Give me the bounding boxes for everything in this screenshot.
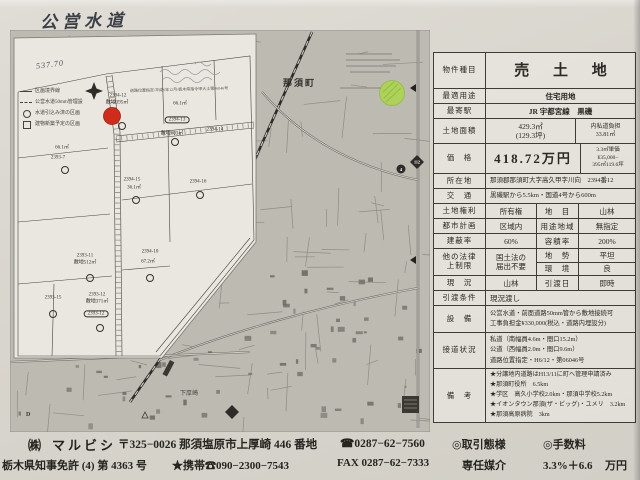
row-label: 物件種目	[434, 53, 486, 88]
row-access: 交 通 黒磯駅から5.5km・国道4号から600m	[434, 189, 635, 204]
row-label: 所在地	[434, 174, 486, 188]
row-city-plan: 都市計画 区域内 用途地域 無指定	[434, 219, 635, 234]
row-label: 地 勢	[537, 249, 579, 262]
property-type-value: 売 土 地	[486, 53, 635, 88]
row-label: 都市計画	[434, 219, 486, 233]
district-label: 下厚崎	[180, 389, 198, 397]
row-label: 設 備	[434, 306, 486, 332]
access-value: 黒磯駅から5.5km・国道4号から600m	[486, 189, 635, 203]
private-road-label: 内私道負担	[590, 123, 620, 131]
city-plan-value: 区域内	[486, 219, 537, 233]
fax-number: FAX 0287−62−7333	[337, 457, 429, 469]
station-value: JR 宇都宮線 黒磯	[486, 104, 635, 118]
legend-label: 水道引込み済の区画	[35, 109, 80, 116]
row-label: 価 格	[434, 144, 486, 173]
row-label: 地 目	[537, 204, 579, 218]
row-property-type: 物件種目 売 土 地	[434, 53, 635, 89]
deal-type-value: 専任媒介	[462, 457, 506, 473]
row-label: 環 境	[537, 263, 579, 276]
genkyo-value: 山林	[486, 276, 537, 290]
legend-line-icon	[20, 88, 32, 94]
map-legend: 区画境界線 公営水道50mm管埋設 水道引込み済の区画 建物新築予定の区画	[20, 85, 115, 129]
row-road-frontage: 接道状況 私道（南幅員4.6m・間口15.2m） 公道（西幅員2.0m・間口9.…	[434, 333, 635, 369]
grid-letter: D	[26, 412, 31, 418]
row-legal: 他の法律 上制限 国土法の 届出不要 地 勢 平坦 環 境 良	[434, 249, 635, 276]
legend-square-icon	[20, 121, 32, 127]
row-label: 容積率	[537, 234, 579, 248]
legend-label: 建物新築予定の区画	[35, 120, 80, 127]
private-road-value: 33.81㎡	[596, 131, 616, 139]
legend-pipe-icon	[20, 99, 32, 105]
fee-label: ◎手数料	[543, 436, 586, 452]
row-label: 交 通	[434, 189, 486, 203]
row-current-state: 現 況 山林 引渡日 即時	[434, 276, 635, 291]
rights-value: 所有権	[486, 204, 537, 218]
kenpei-value: 60%	[486, 234, 537, 248]
deal-type-label: ◎取引態様	[452, 436, 506, 452]
unit-price-line: 395㎡119.6坪	[592, 162, 623, 170]
row-label: 最寄駅	[434, 104, 486, 118]
yoseki-value: 200%	[579, 234, 635, 248]
law-value: 国土法の	[496, 253, 526, 262]
svg-text:112: 112	[414, 160, 420, 165]
setsudo-line: 公道（西幅員2.0m・間口9.6m）	[490, 345, 579, 355]
setsubi-line: 工事負担金¥330,000(税込・道路内埋設分)	[490, 319, 606, 329]
route-4-badge: 4	[397, 165, 406, 174]
row-label: 引渡日	[537, 276, 579, 290]
row-label: 備 考	[434, 369, 486, 423]
company-name: マルビシ	[52, 435, 116, 454]
youto-value: 無指定	[579, 219, 635, 233]
hikiwatashi-value: 即時	[579, 276, 635, 290]
biko-line: ★学区 高久小学校2.0km・那須中学校5.2km	[490, 391, 612, 401]
row-label: 土地権利	[434, 204, 486, 218]
row-usage: 最適用途 住宅用地	[434, 89, 635, 104]
joken-value: 現況渡し	[486, 291, 635, 305]
row-utilities: 設 備 公営水道・前面道路50mm管から敷地接続可 工事負担金¥330,000(…	[434, 306, 635, 333]
footer: ㈱ マルビシ 〒325−0026 那須塩原市上厚崎 446 番地 ☎0287−6…	[0, 430, 640, 480]
property-table: 物件種目 売 土 地 最適用途 住宅用地 最寄駅 JR 宇都宮線 黒磯 土地面積…	[433, 52, 636, 423]
land-area-value: 429.3㎡	[518, 122, 542, 131]
row-location: 所在地 那須郡那須町大字高久甲字川向 2394番12	[434, 174, 635, 189]
tel-number: ☎0287−62−7560	[340, 436, 425, 450]
company-address: 〒325−0026 那須塩原市上厚崎 446 番地	[118, 436, 317, 452]
price-value: 418.72万円	[486, 144, 581, 173]
row-label: 土地面積	[434, 119, 486, 143]
unit-price-line: 3.3㎡単価	[596, 147, 619, 155]
setsudo-line: 道路位置指定・H6/12・第06046号	[490, 356, 584, 366]
mobile-number: ★携帯☎090−2300−7543	[172, 457, 289, 473]
row-coverage: 建蔽率 60% 容積率 200%	[434, 234, 635, 249]
row-label: 建蔽率	[434, 234, 486, 248]
town-label: 那須町	[283, 77, 316, 88]
row-remarks: 備 考 ★分譲地内道路はH13/11に町へ管理申請済み ★那須町役所 6.5km…	[434, 369, 635, 423]
chisei-value: 平坦	[579, 249, 635, 262]
biko-line: ★那須高原病院 3km	[490, 411, 550, 421]
row-label: 引渡条件	[434, 291, 486, 305]
row-label: 上制限	[447, 262, 473, 271]
row-land-area: 土地面積 429.3㎡ (129.3坪) 内私道負担 33.81㎡	[434, 119, 635, 144]
row-price: 価 格 418.72万円 3.3㎡単価 ¥35,000− 395㎡119.6坪	[434, 144, 635, 174]
row-label: 現 況	[434, 276, 486, 290]
law-value: 届出不要	[496, 262, 526, 271]
legend-circle-icon	[20, 110, 32, 116]
license-number: 栃木県知事免許 (4) 第 4363 号	[2, 457, 147, 473]
usage-value: 住宅用地	[486, 89, 635, 103]
fee-value: 3.3%＋6.6	[543, 457, 593, 473]
biko-line: ★イオンタウン那須(ザ・ビッグ)・ユメリ 3.2km	[490, 401, 625, 411]
legend-label: 区画境界線	[35, 87, 60, 94]
fee-unit: 万円	[605, 457, 627, 473]
row-rights: 土地権利 所有権 地 目 山林	[434, 204, 635, 219]
biko-line: ★那須町役所 6.5km	[490, 381, 548, 391]
chimoku-value: 山林	[579, 204, 635, 218]
row-label: 最適用途	[434, 89, 486, 103]
row-station: 最寄駅 JR 宇都宮線 黒磯	[434, 104, 635, 119]
cadastral-map: 道路位置指定/平成6年12月/栃木県指令甲大土第06046号	[10, 30, 260, 360]
row-handover: 引渡条件 現況渡し	[434, 291, 635, 306]
kankyo-value: 良	[579, 263, 635, 276]
row-label: 接道状況	[434, 333, 486, 368]
biko-line: ★分譲地内道路はH13/11に町へ管理申請済み	[490, 371, 612, 381]
map-stamp	[402, 396, 419, 413]
scanned-flyer: 公営水道	[0, 0, 640, 480]
setsudo-line: 私道（南幅員4.6m・間口15.2m）	[490, 335, 582, 345]
row-label: 用途地域	[537, 219, 579, 233]
land-area-tsubo: (129.3坪)	[516, 131, 545, 140]
company-mark: ㈱	[28, 435, 41, 454]
area-highlight-marker	[380, 81, 405, 106]
legend-label: 公営水道50mm管埋設	[35, 98, 83, 105]
setsubi-line: 公営水道・前面道路50mm管から敷地接続可	[490, 309, 613, 319]
location-value: 那須郡那須町大字高久甲字川向 2394番12	[486, 174, 635, 188]
